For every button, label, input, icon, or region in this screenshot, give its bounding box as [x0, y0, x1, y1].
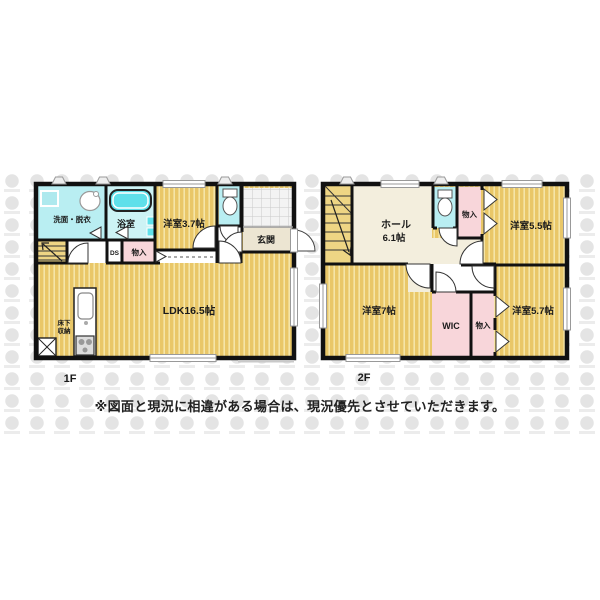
washing-machine-icon: [41, 191, 58, 206]
floor-plan-1f: 洗面・脱衣 浴室 洋室3.7帖 玄関 DS 物入 LDK16.5帖 床下 収納 …: [36, 177, 315, 385]
closet-lower-label: 物入: [476, 320, 491, 330]
stairs-2f: [325, 186, 352, 264]
hall-label: ホール: [381, 219, 411, 231]
burner-icon: [79, 339, 85, 345]
floor-plan-page: 洗面・脱衣 浴室 洋室3.7帖 玄関 DS 物入 LDK16.5帖 床下 収納 …: [0, 0, 600, 600]
front-door-opening: [291, 229, 298, 252]
window: [291, 268, 298, 326]
vent-icon: [96, 177, 110, 184]
floor-label-1f: 1F: [64, 373, 77, 385]
duct-space-label: DS: [110, 250, 120, 257]
window: [346, 355, 400, 362]
shower-fixture-icon: [147, 228, 154, 236]
closet-upper-label: 物入: [462, 209, 477, 219]
floor-plans-drawing: 洗面・脱衣 浴室 洋室3.7帖 玄関 DS 物入 LDK16.5帖 床下 収納 …: [0, 0, 600, 600]
window: [564, 288, 571, 330]
underfloor-storage-hatch: [38, 338, 56, 356]
underfloor-storage-label: 床下: [58, 318, 72, 327]
western-room-7-label: 洋室7帖: [362, 305, 396, 317]
shower-fixture-icon: [147, 217, 154, 225]
vent-icon: [340, 177, 354, 184]
entrance-porch-tile: [243, 188, 293, 227]
ldk-label: LDK16.5帖: [163, 304, 216, 317]
western-room-55-label: 洋室5.5帖: [510, 220, 552, 232]
vent-icon: [218, 177, 232, 184]
washbasin-faucet-icon: [94, 192, 99, 197]
vent-icon: [52, 177, 66, 184]
burner-icon: [86, 339, 92, 345]
toilet-icon: [223, 189, 237, 215]
vent-icon: [434, 177, 448, 184]
washroom-label: 洗面・脱衣: [53, 214, 91, 224]
wic-label: WIC: [442, 321, 460, 331]
closet-1f-label: 物入: [132, 247, 147, 257]
window: [320, 284, 327, 328]
floor-plan-2f: ホール 6.1帖 物入 洋室5.5帖 洋室7帖 WIC 物入 洋室5.7帖 2F: [320, 177, 571, 384]
window: [163, 181, 205, 188]
faucet-icon: [84, 321, 88, 325]
underfloor-storage-label: 収納: [58, 326, 72, 335]
western-room-57-label: 洋室5.7帖: [512, 305, 554, 317]
window: [564, 198, 571, 238]
window: [150, 355, 216, 362]
entrance-label: 玄関: [257, 234, 275, 245]
disclaimer-text: ※図面と現況に相違がある場合は、現況優先とさせていただきます。: [0, 396, 600, 415]
burner-icon: [83, 348, 88, 353]
floor-label-2f: 2F: [358, 372, 371, 384]
kitchen-sink-icon: [78, 293, 93, 319]
western-room-1f-label: 洋室3.7帖: [163, 218, 205, 230]
toilet-icon: [438, 190, 452, 216]
window: [502, 181, 542, 188]
terrace-step-line: [238, 360, 294, 363]
bathroom-label: 浴室: [117, 218, 135, 229]
hall-area-label: 6.1帖: [383, 232, 406, 244]
window: [381, 181, 419, 188]
